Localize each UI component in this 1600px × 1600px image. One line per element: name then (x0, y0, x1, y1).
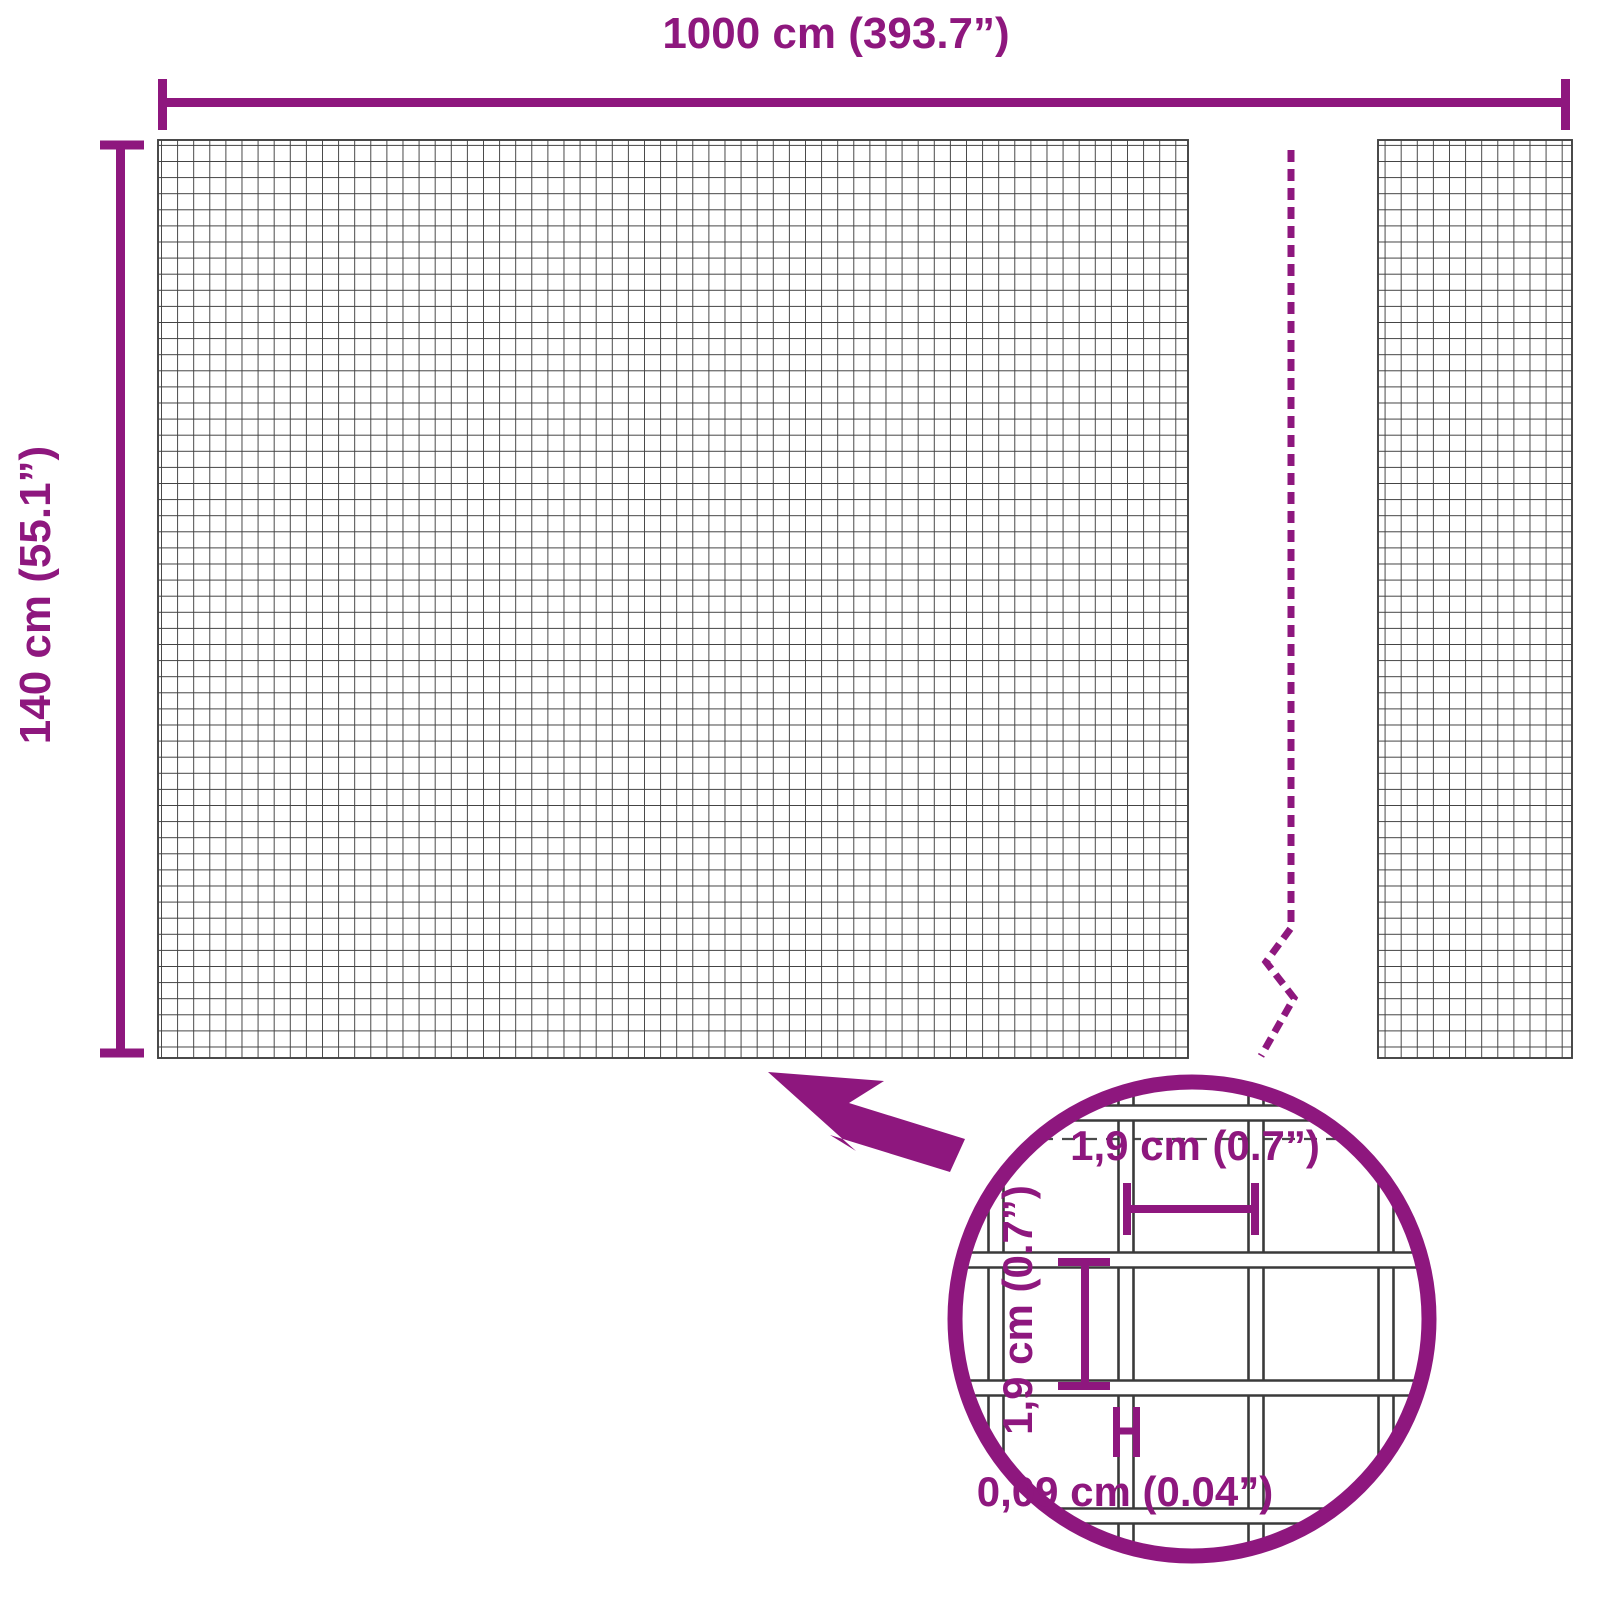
width-dimension-label: 1000 cm (393.7”) (662, 9, 1009, 58)
dimension-diagram-page: 1000 cm (393.7”) 140 cm (55.1”) (0, 0, 1600, 1600)
width-dimension: 1000 cm (393.7”) (162, 9, 1566, 130)
break-line (1261, 150, 1294, 1056)
wire-thickness-label: 0,09 cm (0.04”) (977, 1468, 1274, 1515)
mesh-panel-main (158, 140, 1188, 1058)
mesh-panel-right (1378, 140, 1572, 1058)
height-dimension: 140 cm (55.1”) (11, 141, 144, 1057)
mesh-cell-width-label: 1,9 cm (0.7”) (1070, 1122, 1320, 1169)
horizontal-wire (950, 1106, 1436, 1121)
arrow-icon (768, 1072, 965, 1172)
height-dimension-label: 140 cm (55.1”) (11, 446, 60, 744)
dimension-diagram: 1000 cm (393.7”) 140 cm (55.1”) (0, 0, 1600, 1600)
mesh-cell-height-label: 1,9 cm (0.7”) (994, 1185, 1041, 1435)
vertical-wire (1379, 1078, 1394, 1562)
